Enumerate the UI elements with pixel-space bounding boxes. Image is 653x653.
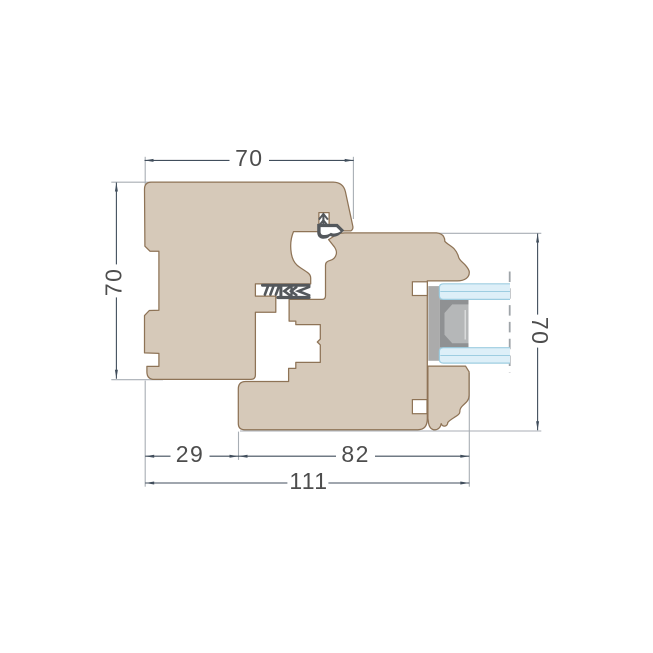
svg-text:70: 70 (527, 317, 553, 345)
svg-text:29: 29 (176, 441, 204, 467)
svg-text:111: 111 (289, 468, 328, 494)
svg-text:70: 70 (235, 145, 263, 171)
svg-text:82: 82 (341, 441, 369, 467)
svg-text:70: 70 (101, 268, 127, 296)
